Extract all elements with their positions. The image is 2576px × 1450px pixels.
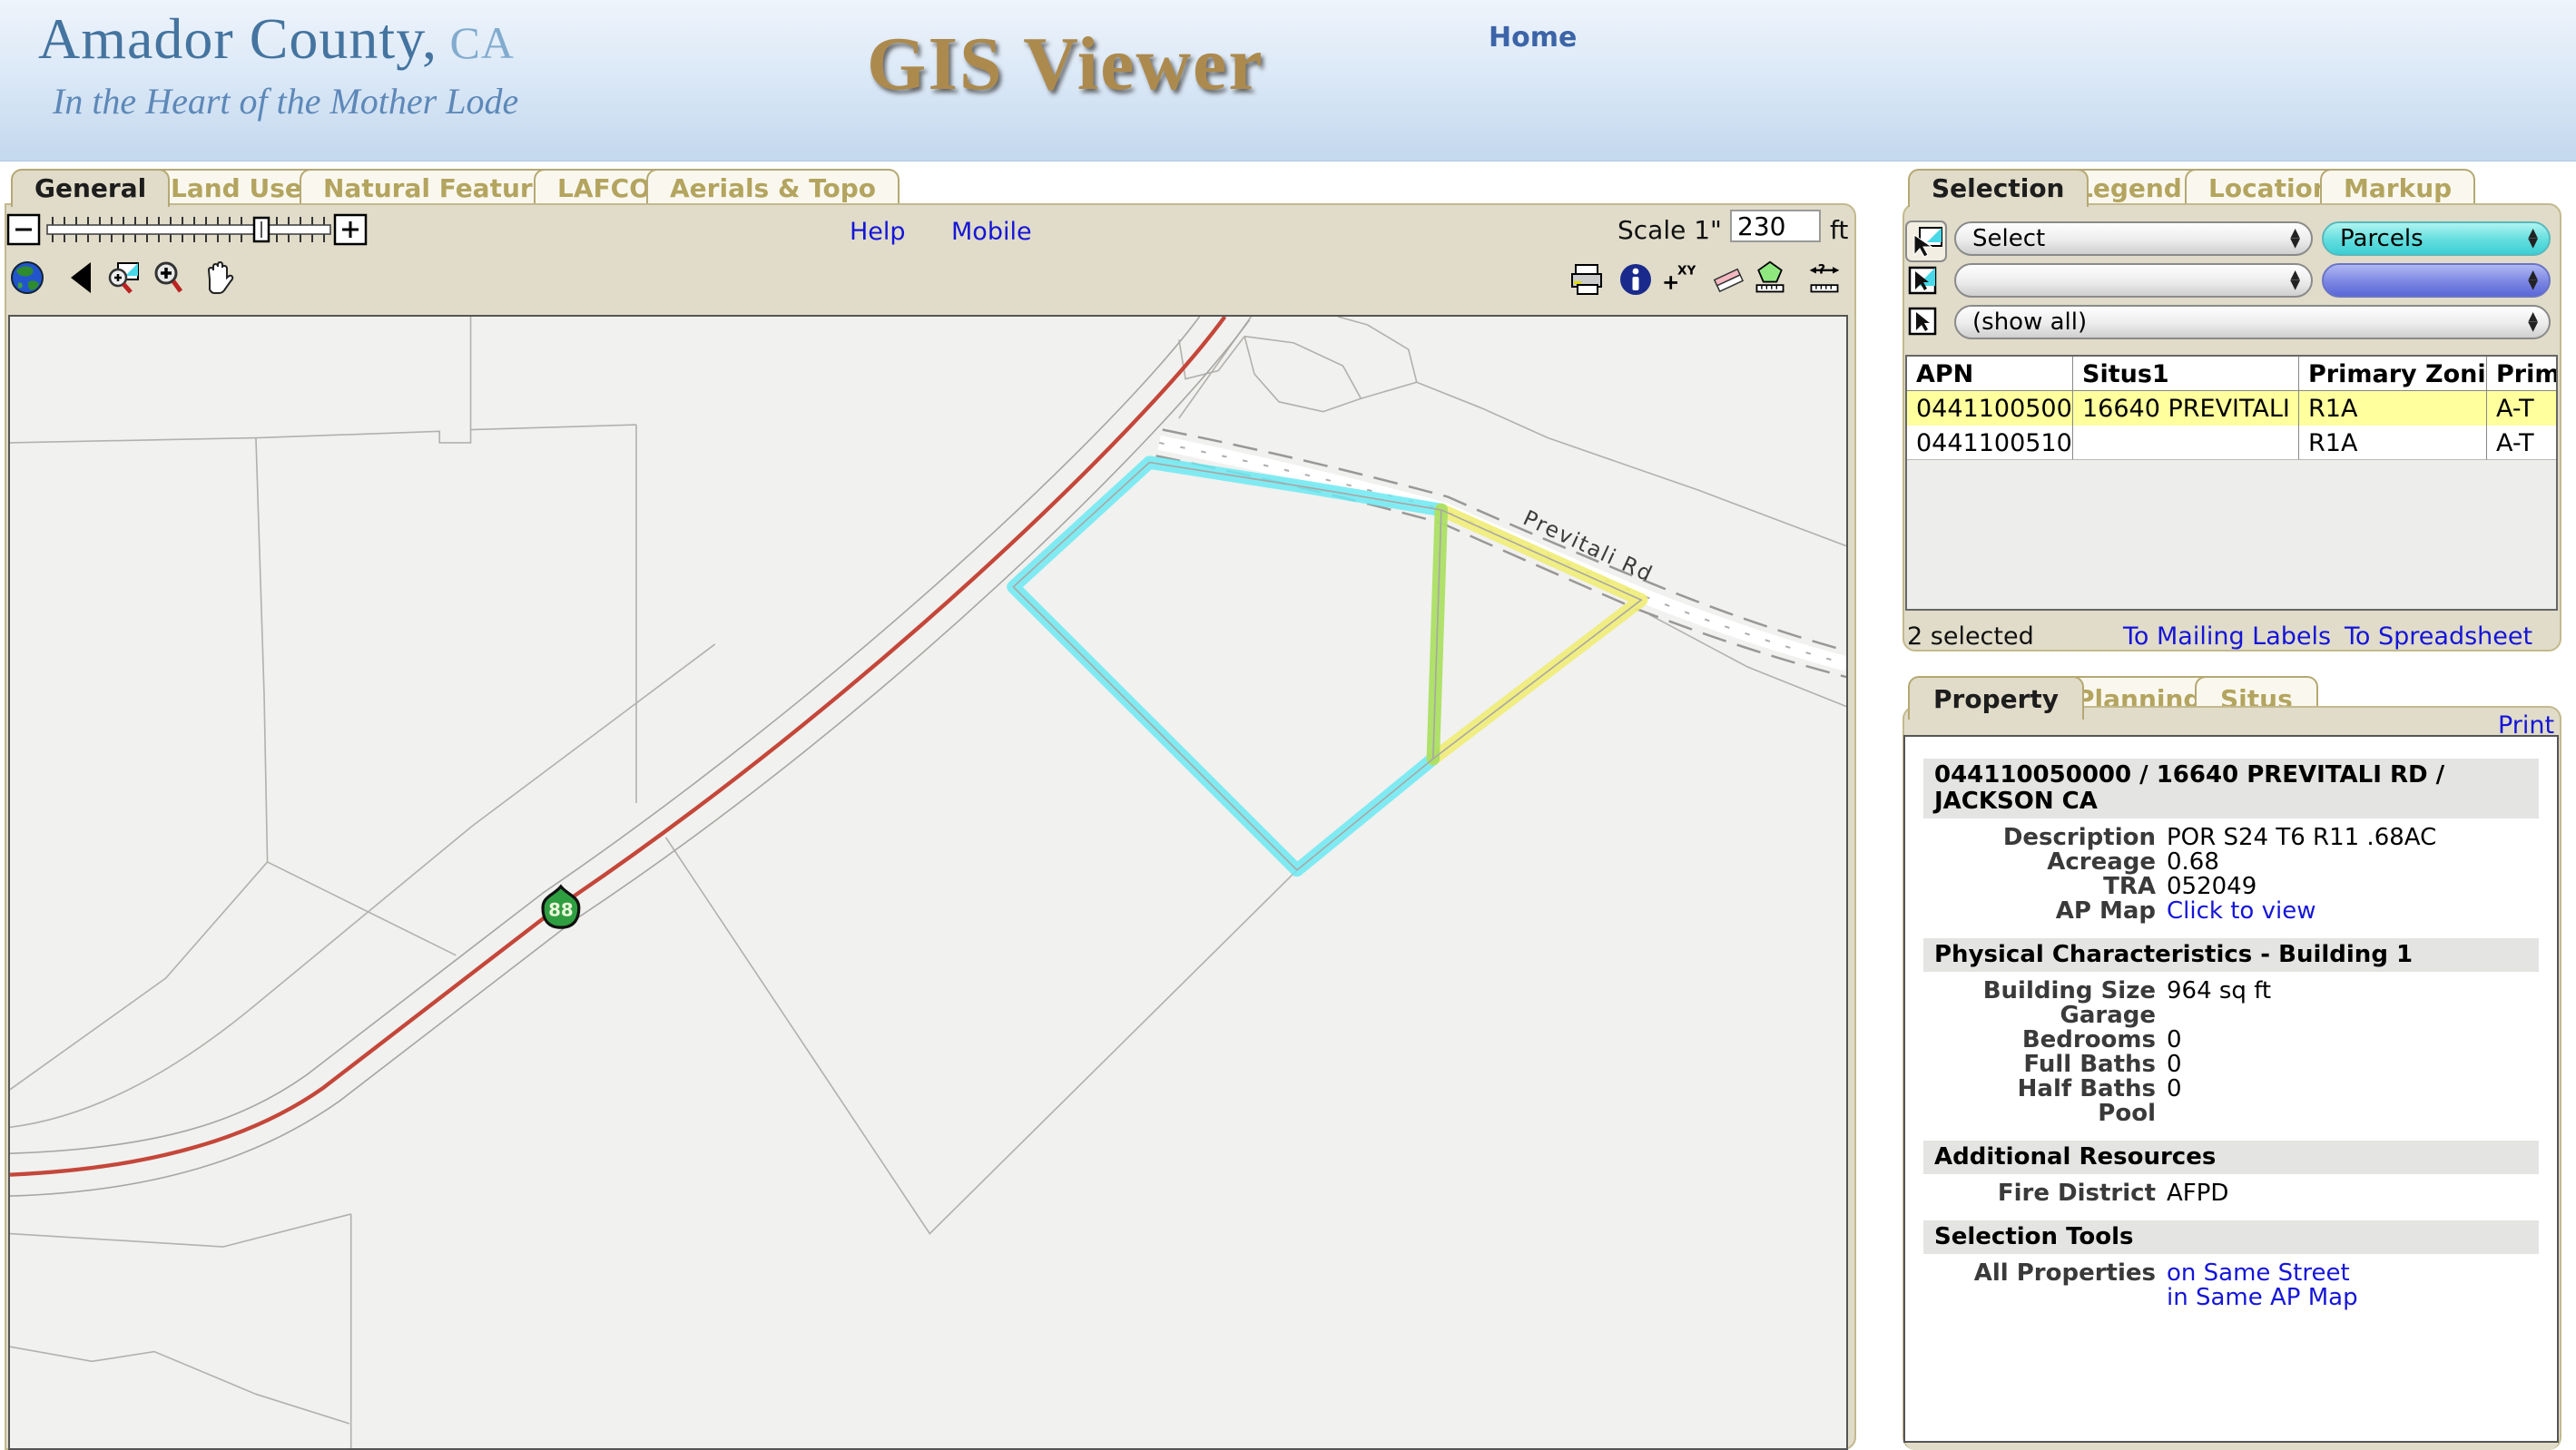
- county-title-suffix: CA: [438, 17, 515, 68]
- tab-general[interactable]: General: [11, 169, 170, 207]
- svg-text:88: 88: [548, 900, 574, 921]
- cell-apn: 044110050000: [1907, 391, 2073, 426]
- county-tagline: In the Heart of the Mother Lode: [53, 80, 518, 122]
- layer-value: Parcels: [2340, 225, 2424, 252]
- filter-value: (show all): [1972, 309, 2087, 336]
- dropdown-arrows-icon: ▲▼: [2528, 229, 2538, 249]
- zoom-to-selection-icon[interactable]: [105, 260, 142, 296]
- selection-count-status: 2 selected: [1907, 622, 2034, 651]
- table-header-row: APN Situs1 Primary Zoning Primary: [1907, 357, 2558, 391]
- zoom-in-icon[interactable]: [151, 260, 187, 296]
- help-link[interactable]: Help: [850, 218, 906, 246]
- to-spreadsheet-link[interactable]: To Spreadsheet: [2345, 622, 2532, 651]
- ap-map-click-to-view-link[interactable]: Click to view: [2167, 899, 2315, 924]
- property-header-line2: JACKSON CA: [1934, 789, 2535, 815]
- zoom-slider[interactable]: [5, 210, 369, 250]
- secondary-action-dropdown[interactable]: ▲▼: [1954, 263, 2313, 298]
- property-detail-box: 044110050000 / 16640 PREVITALI RD / JACK…: [1903, 735, 2559, 1443]
- mobile-link[interactable]: Mobile: [951, 218, 1032, 246]
- property-row-acreage: Acreage 0.68: [1923, 850, 2539, 875]
- section-selection-tools: Selection Tools: [1923, 1220, 2539, 1254]
- full-extent-globe-icon[interactable]: [9, 260, 45, 296]
- table-row[interactable]: 044110050000 16640 PREVITALI RD R1A A-T: [1907, 391, 2558, 426]
- select-by-point-tool-icon[interactable]: [1905, 220, 1947, 262]
- cell-situs1: 16640 PREVITALI RD: [2073, 391, 2299, 426]
- on-same-street-link[interactable]: on Same Street: [2167, 1261, 2350, 1286]
- show-all-tool-icon[interactable]: [1908, 307, 1937, 336]
- property-row-all-properties: All Properties on Same Street: [1923, 1261, 2539, 1286]
- zoom-out-button[interactable]: [8, 215, 39, 244]
- add-xy-point-icon[interactable]: XY: [1659, 260, 1696, 296]
- to-mailing-labels-link[interactable]: To Mailing Labels: [2123, 622, 2331, 651]
- pan-hand-icon[interactable]: [201, 260, 237, 296]
- cell-situs1: [2073, 426, 2299, 460]
- measure-area-icon[interactable]: [1752, 260, 1788, 296]
- section-additional-resources: Additional Resources: [1923, 1141, 2539, 1174]
- table-row[interactable]: 044110051000 R1A A-T: [1907, 426, 2558, 460]
- tab-markup[interactable]: Markup: [2320, 169, 2475, 205]
- property-row-tra: TRA 052049: [1923, 875, 2539, 899]
- dropdown-arrows-icon: ▲▼: [2528, 270, 2538, 290]
- home-link[interactable]: Home: [1489, 22, 1577, 54]
- identify-info-icon[interactable]: [1617, 261, 1654, 298]
- map-viewport[interactable]: Previtali Rd 88: [8, 315, 1848, 1450]
- dropdown-arrows-icon: ▲▼: [2528, 312, 2538, 332]
- county-title: Amador County, CA: [38, 5, 515, 73]
- map-background: [10, 317, 1846, 1448]
- filter-dropdown[interactable]: (show all) ▲▼: [1954, 305, 2551, 339]
- property-row-description: Description POR S24 T6 R11 .68AC: [1923, 826, 2539, 850]
- scale-input[interactable]: [1730, 210, 1821, 242]
- print-icon[interactable]: [1568, 261, 1605, 298]
- measure-distance-icon[interactable]: ?: [1806, 260, 1843, 296]
- app-title: GIS Viewer: [867, 20, 1264, 108]
- in-same-ap-map-link[interactable]: in Same AP Map: [2167, 1286, 2358, 1310]
- select-action-value: Select: [1972, 225, 2045, 252]
- dropdown-arrows-icon: ▲▼: [2290, 229, 2300, 249]
- tab-selection[interactable]: Selection: [1908, 169, 2089, 207]
- layer-dropdown[interactable]: Parcels ▲▼: [2322, 221, 2551, 256]
- property-row-building-size: Building Size 964 sq ft: [1923, 979, 2539, 1004]
- property-row-garage: Garage: [1923, 1004, 2539, 1028]
- property-row-same-ap-map: in Same AP Map: [1923, 1286, 2539, 1310]
- select-layer2-tool-icon[interactable]: [1908, 266, 1937, 295]
- select-action-dropdown[interactable]: Select ▲▼: [1954, 221, 2313, 256]
- col-header-primary[interactable]: Primary: [2487, 357, 2558, 391]
- back-arrow-icon[interactable]: [64, 260, 100, 296]
- property-header: 044110050000 / 16640 PREVITALI RD / JACK…: [1923, 759, 2539, 818]
- cell-primary-zoning: R1A: [2299, 391, 2487, 426]
- property-row-pool: Pool: [1923, 1102, 2539, 1126]
- property-row-full-baths: Full Baths 0: [1923, 1053, 2539, 1077]
- svg-text:XY: XY: [1677, 263, 1696, 278]
- col-header-situs1[interactable]: Situs1: [2073, 357, 2299, 391]
- scale-unit-label: ft: [1830, 215, 1848, 245]
- secondary-layer-dropdown[interactable]: ▲▼: [2322, 263, 2551, 298]
- property-row-ap-map: AP Map Click to view: [1923, 899, 2539, 924]
- tab-property[interactable]: Property: [1908, 676, 2084, 720]
- cell-primary: A-T: [2487, 426, 2558, 460]
- zoom-slider-track[interactable]: [47, 225, 330, 234]
- col-header-primary-zoning[interactable]: Primary Zoning: [2299, 357, 2487, 391]
- cell-apn: 044110051000: [1907, 426, 2073, 460]
- eraser-icon[interactable]: [1710, 261, 1746, 298]
- tab-aerials-topo[interactable]: Aerials & Topo: [646, 169, 900, 205]
- property-row-bedrooms: Bedrooms 0: [1923, 1028, 2539, 1053]
- property-row-fire-district: Fire District AFPD: [1923, 1181, 2539, 1206]
- page-header: Amador County, CA In the Heart of the Mo…: [0, 0, 2576, 162]
- cell-primary-zoning: R1A: [2299, 426, 2487, 460]
- dropdown-arrows-icon: ▲▼: [2290, 270, 2300, 290]
- selection-results-table: APN Situs1 Primary Zoning Primary 044110…: [1905, 355, 2558, 611]
- section-physical-characteristics: Physical Characteristics - Building 1: [1923, 938, 2539, 972]
- property-header-line1: 044110050000 / 16640 PREVITALI RD /: [1934, 762, 2535, 789]
- zoom-in-button[interactable]: [335, 215, 366, 244]
- col-header-apn[interactable]: APN: [1907, 357, 2073, 391]
- cell-primary: A-T: [2487, 391, 2558, 426]
- property-row-half-baths: Half Baths 0: [1923, 1077, 2539, 1102]
